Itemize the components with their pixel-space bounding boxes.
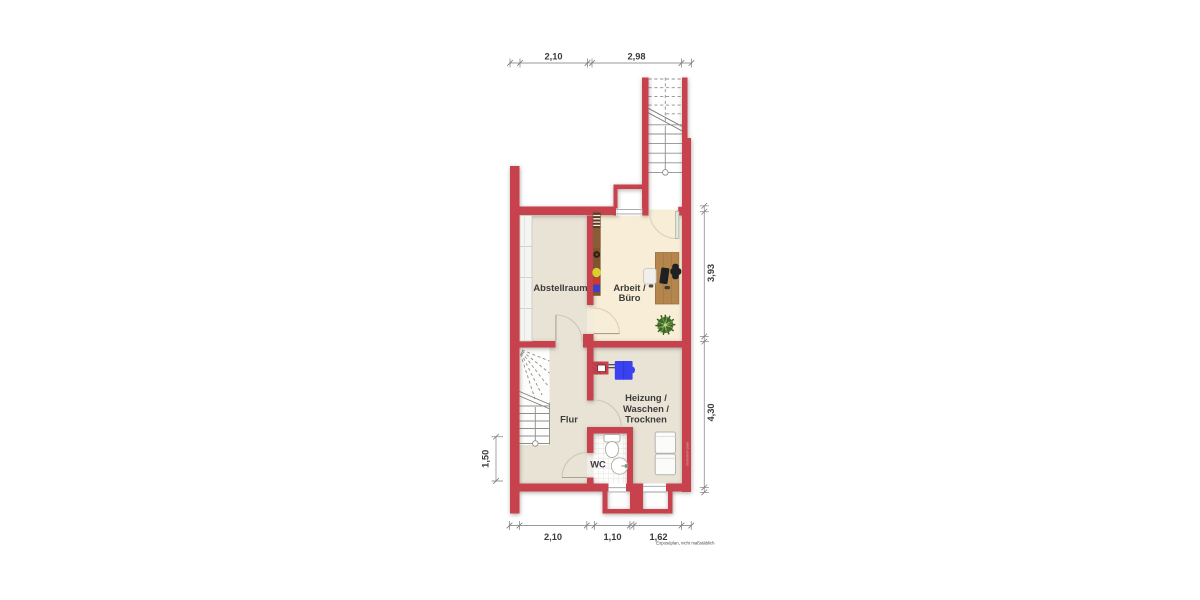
svg-text:4,30: 4,30 [706,403,716,421]
svg-text:2,98: 2,98 [627,52,645,62]
svg-text:Heizung /: Heizung / [625,392,667,403]
svg-text:Flur: Flur [560,413,578,424]
svg-text:Büro: Büro [619,292,641,303]
svg-text:Exposéplan, nicht maßstäblich: Exposéplan, nicht maßstäblich [656,541,715,546]
svg-text:immowelt-plan: immowelt-plan [685,442,689,466]
svg-text:1,50: 1,50 [480,450,490,468]
svg-text:Abstellraum: Abstellraum [533,282,587,293]
svg-text:Waschen /: Waschen / [623,403,669,414]
svg-text:1,10: 1,10 [603,532,621,542]
svg-text:2,10: 2,10 [544,52,562,62]
svg-text:WC: WC [590,458,606,469]
svg-text:2,10: 2,10 [544,532,562,542]
svg-text:Trocknen: Trocknen [625,414,667,425]
svg-text:3,93: 3,93 [706,264,716,282]
